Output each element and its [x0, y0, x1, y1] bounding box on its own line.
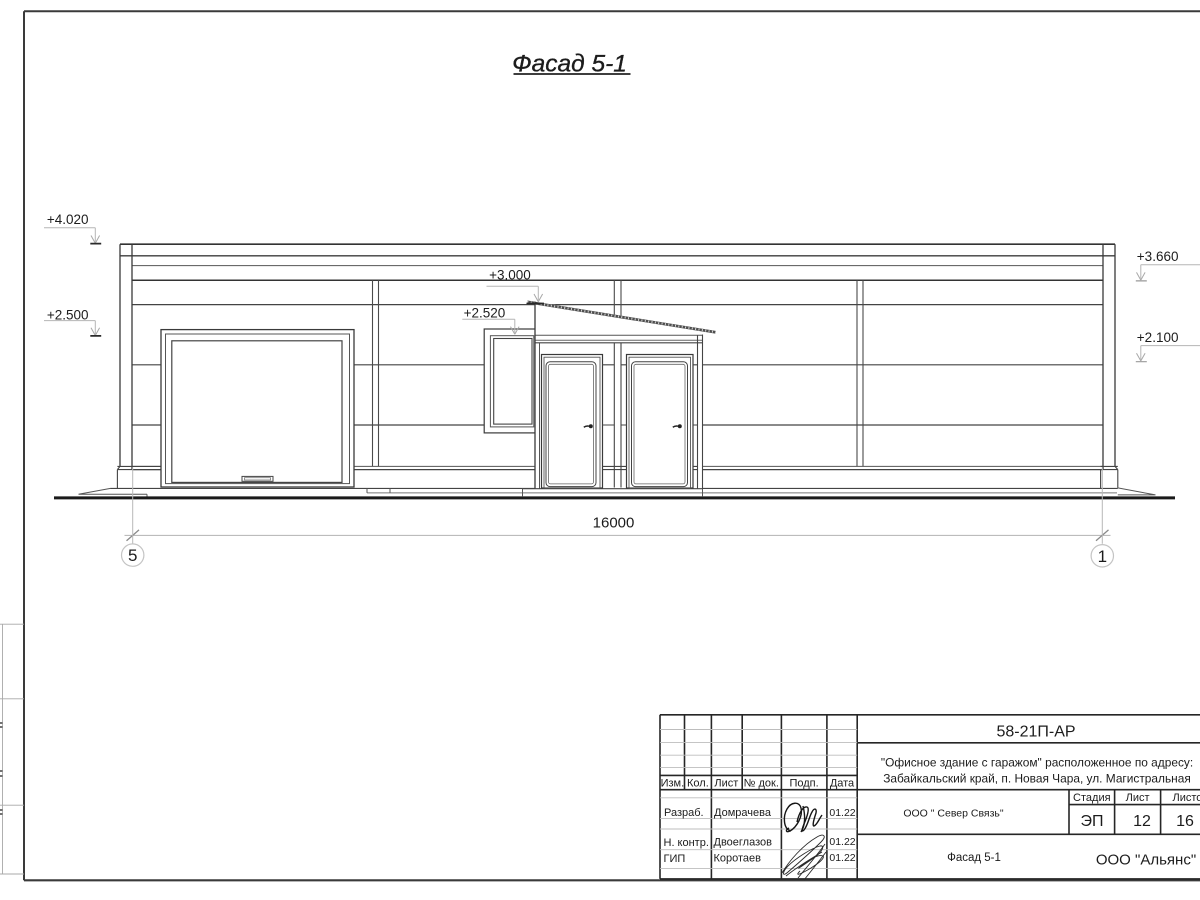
svg-text:01.22: 01.22	[829, 852, 855, 864]
svg-text:Изм.: Изм.	[661, 777, 685, 789]
svg-text:Дата: Дата	[830, 777, 855, 789]
svg-text:Фасад 5-1: Фасад 5-1	[947, 852, 1001, 864]
svg-text:01.22: 01.22	[829, 836, 855, 848]
svg-text:Листов: Листов	[1173, 792, 1200, 804]
svg-text:Разраб.: Разраб.	[664, 807, 704, 819]
svg-text:+4.020: +4.020	[47, 212, 89, 227]
svg-text:16000: 16000	[593, 515, 635, 532]
svg-text:5: 5	[128, 546, 137, 565]
svg-text:Домрачева: Домрачева	[714, 807, 772, 819]
svg-text:01.22: 01.22	[829, 807, 855, 819]
svg-text:58-21П-АР: 58-21П-АР	[996, 724, 1075, 741]
svg-text:Кол.: Кол.	[687, 777, 709, 789]
svg-text:+3.660: +3.660	[1137, 249, 1179, 264]
svg-text:ООО "Альянс": ООО "Альянс"	[1096, 852, 1196, 869]
svg-text:12: 12	[1133, 813, 1151, 830]
svg-text:Н. контр.: Н. контр.	[664, 837, 709, 849]
svg-text:+2.100: +2.100	[1137, 330, 1179, 345]
svg-text:16: 16	[1176, 813, 1194, 830]
svg-text:Лист: Лист	[1126, 792, 1150, 804]
svg-text:+2.500: +2.500	[47, 307, 89, 322]
svg-text:"Офисное здание с гаражом" рас: "Офисное здание с гаражом" расположенное…	[881, 756, 1193, 770]
svg-text:Подп.: Подп.	[789, 777, 818, 789]
svg-text:Двоеглазов: Двоеглазов	[714, 836, 773, 848]
svg-text:ООО " Север Связь": ООО " Север Связь"	[903, 808, 1004, 820]
svg-text:+3.000: +3.000	[489, 267, 531, 282]
svg-text:1: 1	[1098, 547, 1107, 566]
svg-text:ЭП: ЭП	[1081, 813, 1104, 830]
svg-text:Забайкальский край, п. Новая Ч: Забайкальский край, п. Новая Чара, ул. М…	[883, 772, 1191, 786]
svg-text:Стадия: Стадия	[1073, 792, 1111, 804]
svg-text:+2.520: +2.520	[464, 305, 506, 320]
svg-text:Лист: Лист	[714, 777, 738, 789]
svg-text:Коротаев: Коротаев	[714, 852, 762, 864]
svg-text:№ док.: № док.	[744, 777, 779, 789]
svg-text:ГИП: ГИП	[664, 853, 686, 865]
